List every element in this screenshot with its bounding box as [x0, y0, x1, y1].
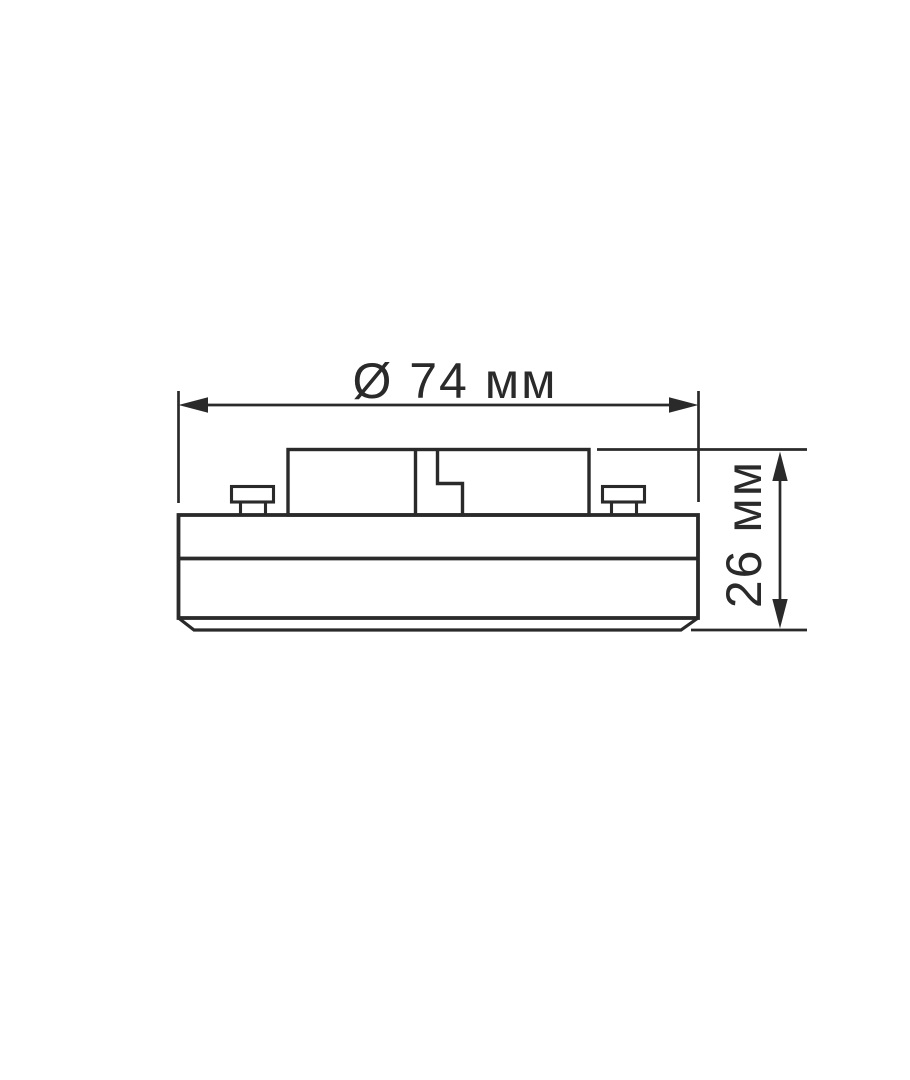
contact-plate	[288, 450, 589, 516]
plate-notch-step	[438, 450, 463, 516]
lamp-body	[179, 515, 699, 630]
pin-right-stem	[612, 502, 637, 515]
linework	[179, 391, 808, 630]
diameter-arrowhead-right	[669, 397, 699, 413]
pin-right	[603, 487, 645, 516]
drawing-canvas: Ø 74 мм 26 мм	[0, 0, 910, 1080]
height-arrowhead-up	[772, 452, 787, 482]
diameter-arrowhead-left	[179, 397, 209, 413]
pin-left-stem	[241, 502, 266, 515]
pin-right-cap	[603, 487, 645, 503]
pin-left	[232, 487, 274, 516]
lamp-dimension-drawing: Ø 74 мм 26 мм	[0, 0, 910, 1080]
pin-left-cap	[232, 487, 274, 503]
height-dimension-label: 26 мм	[716, 460, 772, 608]
height-arrowhead-down	[772, 599, 787, 629]
body-outline	[179, 515, 699, 618]
diameter-dimension-label: Ø 74 мм	[352, 353, 557, 409]
